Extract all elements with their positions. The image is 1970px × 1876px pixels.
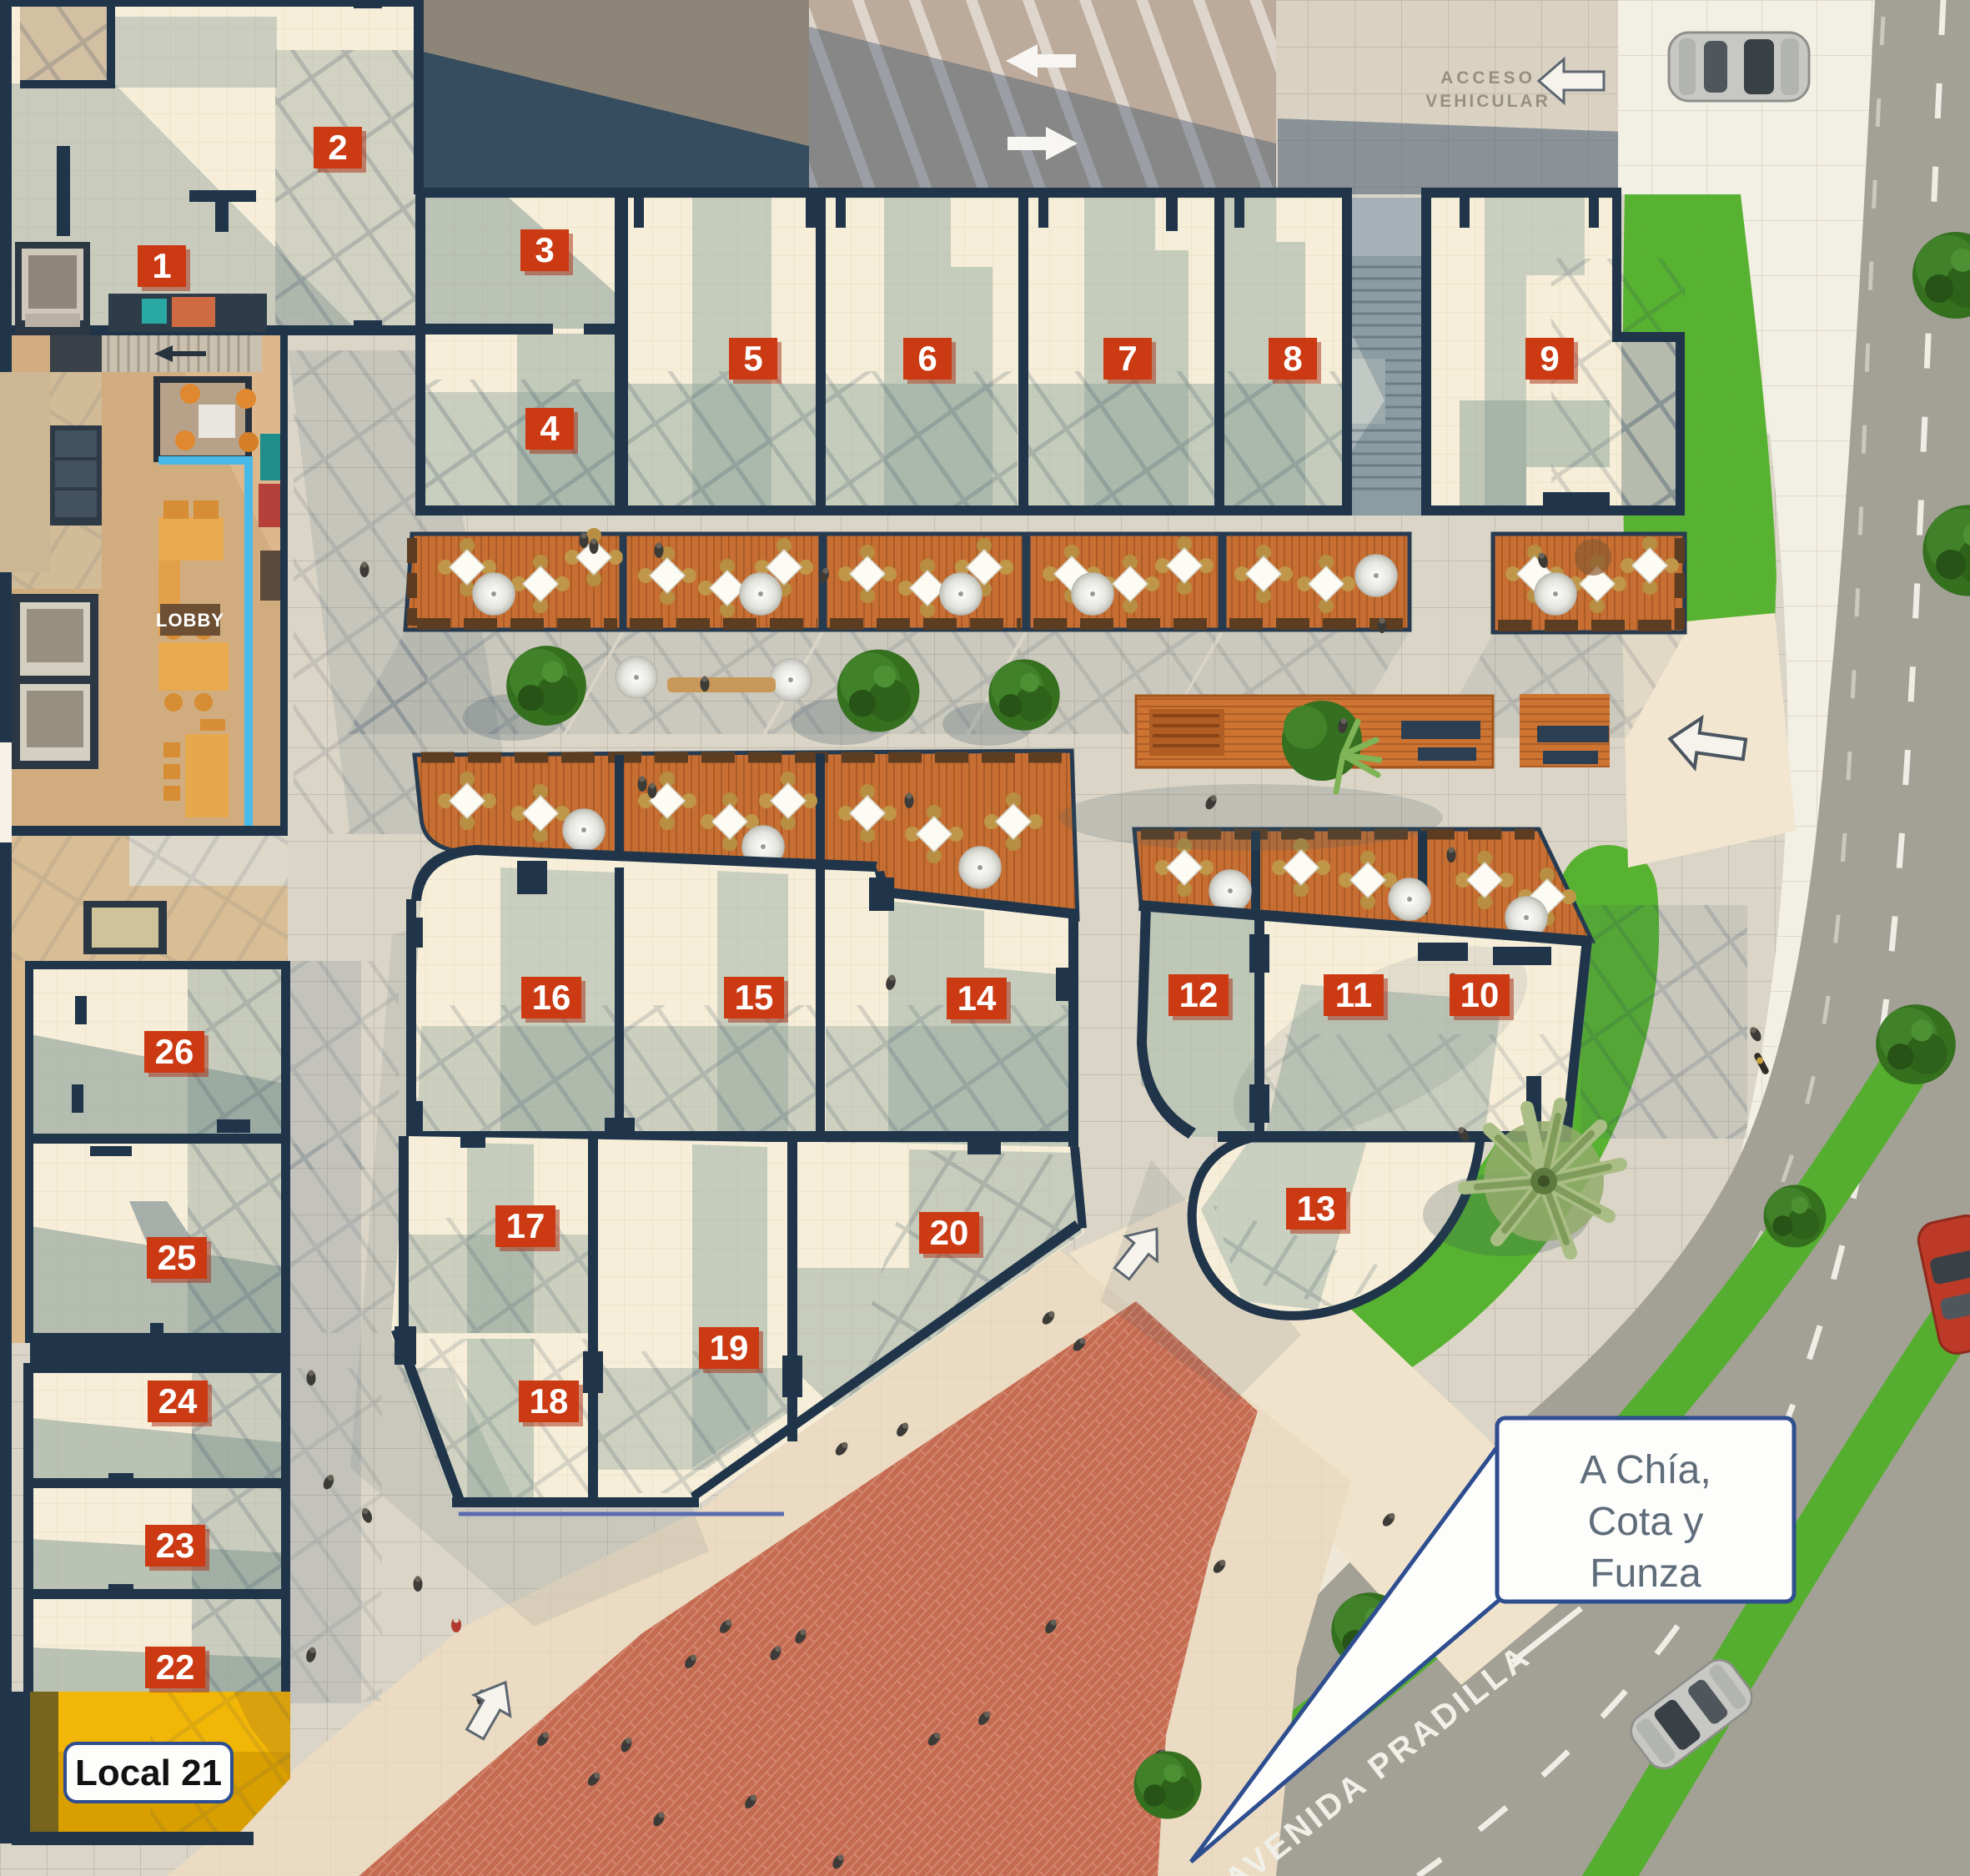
svg-text:3: 3 [535,230,554,269]
svg-text:1: 1 [152,246,171,285]
svg-text:20: 20 [930,1213,969,1252]
svg-text:25: 25 [158,1238,197,1277]
svg-text:11: 11 [1335,975,1372,1014]
svg-text:5: 5 [743,339,762,378]
svg-text:4: 4 [540,409,560,448]
svg-text:12: 12 [1179,975,1219,1014]
svg-text:10: 10 [1460,975,1500,1014]
svg-text:Cota y: Cota y [1588,1500,1704,1544]
svg-text:Funza: Funza [1590,1552,1701,1596]
svg-text:19: 19 [710,1328,749,1367]
svg-text:14: 14 [957,978,997,1018]
svg-text:7: 7 [1118,339,1137,378]
svg-text:26: 26 [155,1032,194,1071]
svg-text:13: 13 [1297,1189,1336,1228]
svg-text:22: 22 [156,1647,195,1687]
svg-text:VEHICULAR: VEHICULAR [1425,92,1550,111]
svg-text:18: 18 [530,1381,569,1421]
svg-text:17: 17 [506,1206,545,1245]
svg-text:ACCESO: ACCESO [1440,68,1535,88]
svg-text:LOBBY: LOBBY [156,610,224,631]
svg-text:15: 15 [735,978,774,1017]
svg-text:8: 8 [1283,339,1302,378]
svg-text:Local 21: Local 21 [75,1753,222,1793]
svg-text:2: 2 [328,128,347,167]
svg-text:A Chía,: A Chía, [1580,1448,1711,1492]
svg-text:16: 16 [532,978,571,1017]
svg-text:6: 6 [917,339,937,378]
svg-text:9: 9 [1540,339,1559,378]
svg-text:24: 24 [158,1381,198,1421]
svg-text:23: 23 [156,1526,195,1565]
